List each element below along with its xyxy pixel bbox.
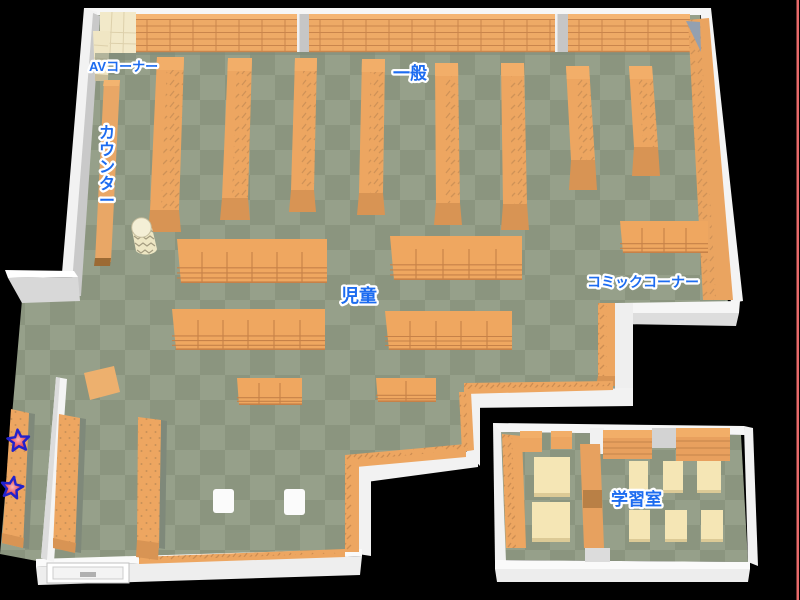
svg-text:AVコーナー: AVコーナー bbox=[89, 59, 158, 74]
svg-text:児童: 児童 bbox=[340, 285, 377, 306]
svg-text:ン: ン bbox=[99, 159, 115, 176]
svg-text:コミックコーナー: コミックコーナー bbox=[587, 274, 699, 290]
svg-text:ウ: ウ bbox=[99, 141, 115, 159]
svg-text:タ: タ bbox=[99, 175, 115, 193]
svg-text:ー: ー bbox=[99, 193, 115, 210]
svg-text:学習室: 学習室 bbox=[611, 489, 662, 509]
svg-text:一般: 一般 bbox=[393, 63, 427, 83]
svg-text:カ: カ bbox=[99, 124, 115, 142]
